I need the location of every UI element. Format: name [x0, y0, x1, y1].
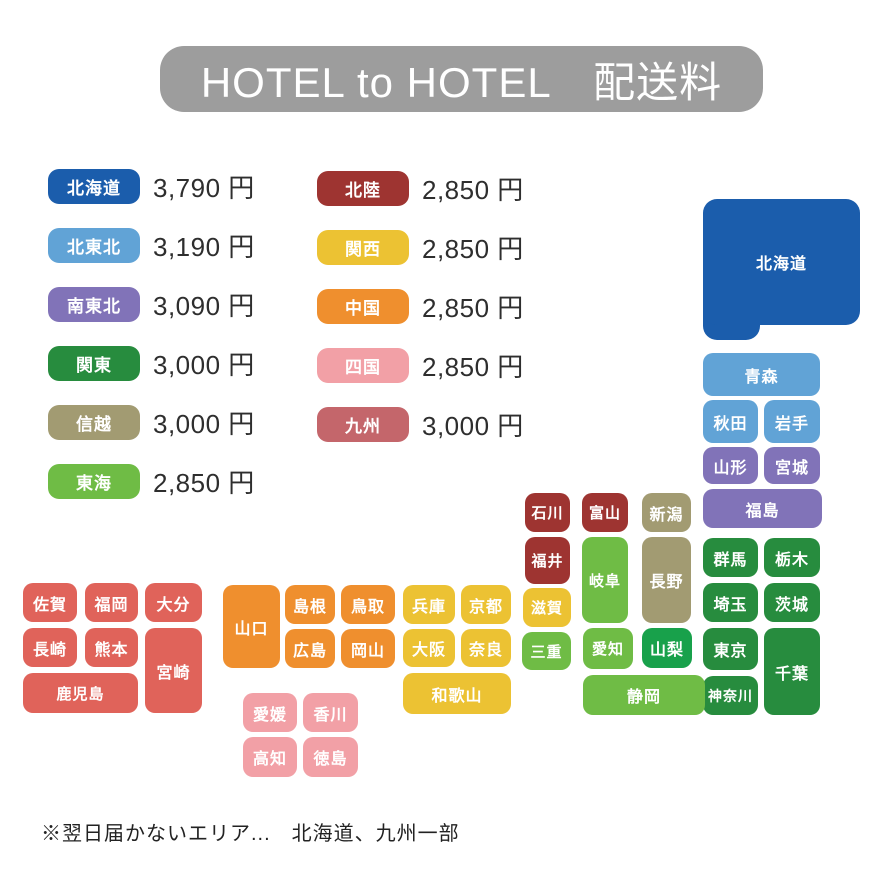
map-tile: 長野	[642, 537, 691, 623]
map-tile: 山形	[703, 447, 758, 484]
map-tile: 岩手	[764, 400, 820, 443]
map-tile: 和歌山	[403, 673, 511, 714]
map-tile: 熊本	[85, 628, 138, 667]
map-tile: 茨城	[764, 583, 820, 622]
map-tile: 千葉	[764, 628, 820, 715]
map-tile: 高知	[243, 737, 297, 777]
map-tile: 栃木	[764, 538, 820, 577]
map-tile: 鹿児島	[23, 673, 138, 713]
map-tile: 山口	[223, 585, 280, 668]
map-tile: 宮崎	[145, 628, 202, 713]
map-tile: 宮城	[764, 447, 820, 484]
map-tile: 埼玉	[703, 583, 758, 622]
map-tile: 富山	[582, 493, 628, 532]
map-tile: 徳島	[303, 737, 358, 777]
map-tile: 滋賀	[523, 588, 571, 627]
map-tile: 群馬	[703, 538, 758, 577]
delivery-fee-infographic: HOTEL to HOTEL 配送料 北海道3,790 円北東北3,190 円南…	[0, 0, 874, 874]
map-tile: 福岡	[85, 583, 138, 622]
map-tile: 山梨	[642, 628, 692, 668]
map-tile: 大阪	[403, 629, 455, 667]
map-tile: 三重	[522, 632, 571, 670]
map-tile: 兵庫	[403, 585, 455, 624]
map-tile: 岐阜	[582, 537, 628, 623]
map-tile: 福島	[703, 489, 822, 528]
map-tile: 岡山	[341, 629, 395, 668]
map-tile: 香川	[303, 693, 358, 732]
map-tile: 奈良	[461, 629, 511, 667]
map-tile: 静岡	[583, 675, 705, 715]
map-tile: 青森	[703, 353, 820, 396]
map-tile: 大分	[145, 583, 202, 622]
map-tile: 京都	[461, 585, 511, 624]
map-tile: 佐賀	[23, 583, 77, 622]
footnote: ※翌日届かないエリア... 北海道、九州一部	[41, 817, 460, 846]
map-tile: 石川	[525, 493, 570, 532]
map-tile: 神奈川	[703, 676, 758, 715]
map-tile: 秋田	[703, 400, 758, 443]
map-tile: 福井	[525, 537, 570, 584]
map-tile: 島根	[285, 585, 335, 624]
map-tile: 長崎	[23, 628, 77, 667]
map-tile: 新潟	[642, 493, 691, 532]
map-tile: 愛媛	[243, 693, 297, 732]
map-tile: 愛知	[583, 628, 633, 669]
map-tile: 広島	[285, 629, 335, 668]
map-tile: 北海道	[703, 199, 860, 325]
map-tile: 東京	[703, 628, 758, 670]
japan-map: 北海道青森秋田岩手山形宮城福島群馬栃木埼玉茨城東京千葉神奈川新潟長野山梨石川富山…	[0, 0, 874, 874]
map-tile: 鳥取	[341, 585, 395, 624]
